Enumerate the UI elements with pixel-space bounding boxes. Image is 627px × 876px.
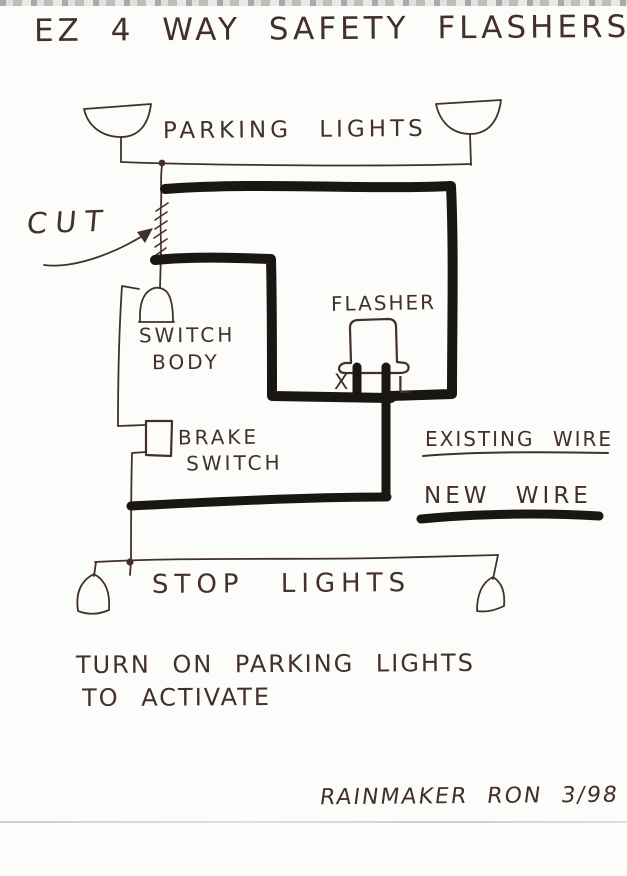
stop-lights-wire-right-bend <box>493 555 498 579</box>
cut-wire-hatching <box>154 203 168 255</box>
flasher-terminal-x-label: X <box>334 371 348 394</box>
parking-light-right-icon <box>436 100 501 165</box>
cut-arrowhead <box>137 228 153 243</box>
switch-body-label-line2: BODY <box>139 349 236 377</box>
flasher-can-icon <box>339 319 409 373</box>
junction-dot-parking <box>159 160 166 167</box>
switch-body-label-line1: SWITCH <box>139 322 236 350</box>
legend-new-wire-label: NEW WIRE <box>424 484 592 509</box>
activation-note-line1: TURN ON PARKING LIGHTS <box>76 647 475 682</box>
legend-existing-wire-label: EXISTING WIRE <box>425 428 613 450</box>
cut-label: CUT <box>25 206 111 241</box>
stop-lights-label: STOP LIGHTS <box>152 569 411 599</box>
cut-wire-upper <box>161 166 162 204</box>
signature: RAINMAKER RON 3/98 <box>318 784 620 811</box>
thick-new-wire-bottom <box>131 497 387 506</box>
new-wire-legend-sample <box>421 514 599 519</box>
stop-light-left-icon <box>77 574 109 614</box>
scanned-wiring-diagram-page: EZ 4 WAY SAFETY FLASHERS PARKING LIGHTS … <box>0 0 627 876</box>
brake-switch-box <box>146 421 172 456</box>
parking-light-left-icon <box>84 104 151 162</box>
flasher-terminal-l-label: L <box>397 374 410 399</box>
scan-artifact-horizontal-line <box>0 821 627 823</box>
switch-body-label: SWITCH BODY <box>139 322 236 377</box>
stop-lights-wire <box>95 555 498 562</box>
junction-dot-stop <box>126 558 133 565</box>
brake-switch-label: BRAKE SWITCH <box>178 423 283 476</box>
brake-switch-wire <box>130 452 146 575</box>
parking-lights-label: PARKING LIGHTS <box>163 117 427 145</box>
activation-note-line2: TO ACTIVATE <box>76 680 475 715</box>
stop-light-right-icon <box>477 577 504 611</box>
switch-body-dome-icon <box>139 288 174 322</box>
activation-note: TURN ON PARKING LIGHTS TO ACTIVATE <box>76 647 475 715</box>
brake-switch-label-line2: SWITCH <box>178 449 283 476</box>
parking-lights-wire <box>121 162 471 165</box>
flasher-label: FLASHER <box>331 291 436 315</box>
existing-wire-underline <box>423 452 608 456</box>
brake-switch-label-line1: BRAKE <box>178 423 283 450</box>
page-title: EZ 4 WAY SAFETY FLASHERS <box>34 10 627 48</box>
